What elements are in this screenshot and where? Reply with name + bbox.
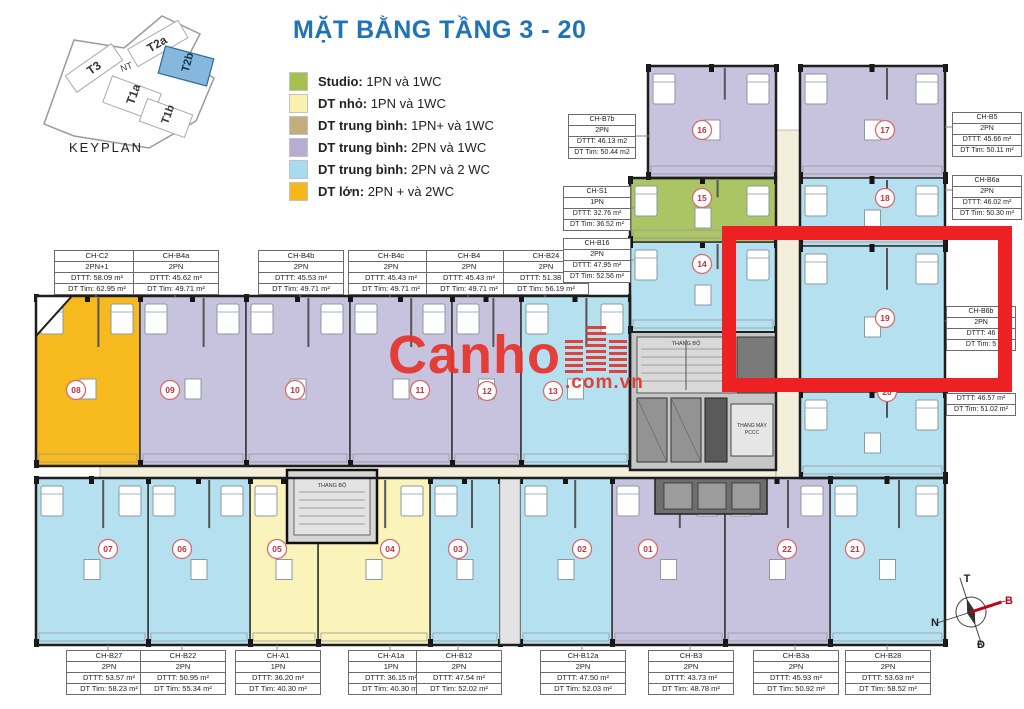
unit-number-22: 22 <box>778 540 797 559</box>
unit-code: CH-B4c <box>349 251 433 261</box>
unit-type: 2PN <box>134 261 218 272</box>
unit-code: CH-B28 <box>846 651 930 661</box>
unit-type: 2PN <box>427 261 511 272</box>
keyplan-caption: KEYPLAN <box>69 140 143 155</box>
fire-elevator-label-2: PCCC <box>745 430 760 436</box>
unit-number-16: 16 <box>693 121 712 140</box>
watermark-suffix: .com.vn <box>565 372 644 394</box>
unit-area-dttim: DT Tim: 50.30 m² <box>953 208 1021 219</box>
unit-code: CH-B6a <box>953 176 1021 186</box>
unit-area-dttim: DT Tim: 40.30 m² <box>236 683 320 694</box>
unit-number-04: 04 <box>381 540 400 559</box>
unit-area-dttim: DT Tim: 50.92 m² <box>754 683 838 694</box>
unit-code: CH-C2 <box>55 251 139 261</box>
unit-label-ch-s1: CH-S11PNDTTT: 32.76 m²DT Tim: 36.52 m² <box>563 186 631 231</box>
legend-swatch-small <box>289 94 308 113</box>
unit-label-ch-b7b: CH-B7b2PNDTTT: 46.13 m2DT Tim: 50.44 m2 <box>568 114 636 159</box>
unit-label-ch-b4a: CH-B4a2PNDTTT: 45.62 m²DT Tim: 49.71 m² <box>133 250 219 295</box>
unit-type: 2PN <box>67 661 151 672</box>
unit-type: 2PN <box>417 661 501 672</box>
legend: Studio: 1PN và 1WC DT nhỏ: 1PN và 1WC DT… <box>289 70 494 202</box>
unit-area-dttim: DT Tim: 49.71 m² <box>349 283 433 294</box>
unit-type: 2PN <box>569 125 635 136</box>
unit-code: CH-B16 <box>564 239 630 249</box>
unit-label-ch-b16: CH-B162PNDTTT: 47.95 m²DT Tim: 52.56 m² <box>563 238 631 283</box>
unit-label-ch-b28: CH-B282PNDTTT: 53.63 m²DT Tim: 58.52 m² <box>845 650 931 695</box>
unit-number-05: 05 <box>268 540 287 559</box>
keyplan: T3 NT T2a T2b T1a T1b KEYPLAN <box>14 6 229 158</box>
unit-area-dtt: DTTT: 45.53 m² <box>259 272 343 283</box>
unit-area-dttim: DT Tim: 58.23 m² <box>67 683 151 694</box>
unit-area-dtt: DTTT: 36.20 m² <box>236 672 320 683</box>
unit-code: CH-B3a <box>754 651 838 661</box>
svg-text:17: 17 <box>880 125 890 135</box>
unit-number-01: 01 <box>639 540 658 559</box>
unit-area-20 <box>798 390 948 480</box>
svg-text:08: 08 <box>71 385 81 395</box>
legend-item-medium-2pn1wc: DT trung bình: 2PN và 1WC <box>289 136 494 158</box>
svg-text:18: 18 <box>880 193 890 203</box>
unit-area-dtt: DTTT: 47.54 m² <box>417 672 501 683</box>
unit-area-dtt: DTTT: 43.73 m² <box>649 672 733 683</box>
unit-area-dtt: DTTT: 53.63 m² <box>846 672 930 683</box>
unit-type: 2PN <box>541 661 625 672</box>
svg-text:15: 15 <box>697 193 707 203</box>
legend-item-medium-2pn2wc: DT trung bình: 2PN và 2 WC <box>289 158 494 180</box>
unit-label-ch-b22: CH-B222PNDTTT: 50.95 m²DT Tim: 55.34 m² <box>140 650 226 695</box>
legend-item-large: DT lớn: 2PN + và 2WC <box>289 180 494 202</box>
unit-area-dttim: DT Tim: 49.71 m² <box>134 283 218 294</box>
legend-item-medium-1pn: DT trung bình: 1PN+ và 1WC <box>289 114 494 136</box>
unit-number-06: 06 <box>173 540 192 559</box>
unit-number-08: 08 <box>67 381 86 400</box>
unit-type: 2PN <box>141 661 225 672</box>
compass-icon: T B N Đ <box>925 568 1020 663</box>
page-title: MẶT BẰNG TẦNG 3 - 20 <box>293 16 586 45</box>
unit-area-dttim: DT Tim: 49.71 m² <box>259 283 343 294</box>
unit-code: CH-A1 <box>236 651 320 661</box>
svg-text:21: 21 <box>850 544 860 554</box>
legend-swatch-medium-2pn2wc <box>289 160 308 179</box>
unit-code: CH-B12 <box>417 651 501 661</box>
unit-area-16 <box>646 64 779 180</box>
unit-code: CH-B4a <box>134 251 218 261</box>
unit-label-ch-b4b: CH-B4b2PNDTTT: 45.53 m²DT Tim: 49.71 m² <box>258 250 344 295</box>
unit-area-dttim: DT Tim: 48.78 m² <box>649 683 733 694</box>
unit-type: 2PN+1 <box>55 261 139 272</box>
svg-text:16: 16 <box>697 125 707 135</box>
legend-swatch-studio <box>289 72 308 91</box>
svg-text:22: 22 <box>782 544 792 554</box>
unit-area-dtt: DTTT: 45.93 m² <box>754 672 838 683</box>
unit-label-ch-b6a: CH-B6a2PNDTTT: 46.02 m²DT Tim: 50.30 m² <box>952 175 1022 220</box>
unit-area-dttim: DT Tim: 36.52 m² <box>564 219 630 230</box>
unit-number-15: 15 <box>693 189 712 208</box>
unit-area-dttim: DT Tim: 56.19 m² <box>504 283 588 294</box>
unit-label-ch-b12a: CH-B12a2PNDTTT: 47.50 m²DT Tim: 52.03 m² <box>540 650 626 695</box>
fire-elevator-label-1: THANG MÁY <box>737 422 767 429</box>
unit-label-ch-b4c: CH-B4c2PNDTTT: 45.43 m²DT Tim: 49.71 m² <box>348 250 434 295</box>
unit-area-dtt: DTTT: 46.02 m² <box>953 197 1021 208</box>
unit-label-ch-b12: CH-B122PNDTTT: 47.54 m²DT Tim: 52.02 m² <box>416 650 502 695</box>
stair-label-2: THANG BỘ <box>318 482 347 489</box>
unit-area-dttim: DT Tim: 50.44 m2 <box>569 147 635 158</box>
unit-area-dtt: DTTT: 47.50 m² <box>541 672 625 683</box>
legend-swatch-medium-2pn1wc <box>289 138 308 157</box>
unit-code: CH-S1 <box>564 187 630 197</box>
svg-text:03: 03 <box>453 544 463 554</box>
unit-area-dttim: DT Tim: 62.95 m² <box>55 283 139 294</box>
unit-area-dtt: DTTT: 58.09 m² <box>55 272 139 283</box>
svg-text:01: 01 <box>643 544 653 554</box>
unit-area-dttim: DT Tim: 52.56 m² <box>564 271 630 282</box>
unit-area-02 <box>518 476 615 647</box>
unit-label-ch-a1: CH-A11PNDTTT: 36.20 m²DT Tim: 40.30 m² <box>235 650 321 695</box>
unit-type: 2PN <box>846 661 930 672</box>
unit-area-dttim: DT Tim: 50.11 m² <box>953 145 1021 156</box>
legend-item-studio: Studio: 1PN và 1WC <box>289 70 494 92</box>
legend-swatch-large <box>289 182 308 201</box>
unit-area-dtt: DTTT: 50.95 m² <box>141 672 225 683</box>
unit-code: CH-B12a <box>541 651 625 661</box>
unit-area-dtt: DTTT: 45.62 m² <box>134 272 218 283</box>
svg-text:04: 04 <box>385 544 395 554</box>
unit-code: CH-B4 <box>427 251 511 261</box>
unit-area-06 <box>146 476 253 647</box>
unit-label-ch-c2: CH-C22PN+1DTTT: 58.09 m²DT Tim: 62.95 m² <box>54 250 140 295</box>
unit-area-dtt: DTTT: 53.57 m² <box>67 672 151 683</box>
unit-area-dttim: DT Tim: 55.34 m² <box>141 683 225 694</box>
unit-code: CH-B22 <box>141 651 225 661</box>
compass-top: T <box>964 573 971 585</box>
unit-number-07: 07 <box>99 540 118 559</box>
unit-area-dtt: DTTT: 32.76 m² <box>564 208 630 219</box>
svg-text:07: 07 <box>103 544 113 554</box>
unit-label-ch-b5: CH-B52PNDTTT: 45.66 m²DT Tim: 50.11 m² <box>952 112 1022 157</box>
unit-area-dttim: DT Tim: 52.03 m² <box>541 683 625 694</box>
svg-text:06: 06 <box>177 544 187 554</box>
unit-area-dtt: DTTT: 47.95 m² <box>564 260 630 271</box>
unit-number-09: 09 <box>161 381 180 400</box>
compass-left: N <box>931 617 939 629</box>
floorplan-page: { "title": "MẶT BẰNG TẦNG 3 - 20", "keyp… <box>0 0 1024 709</box>
unit-area-dttim: DT Tim: 52.02 m² <box>417 683 501 694</box>
unit-type: 2PN <box>564 249 630 260</box>
unit-label-ch-b3a: CH-B3a2PNDTTT: 45.93 m²DT Tim: 50.92 m² <box>753 650 839 695</box>
unit-code: CH-B3 <box>649 651 733 661</box>
unit-area-03 <box>428 476 503 647</box>
svg-text:02: 02 <box>577 544 587 554</box>
unit-label-partial: DTTT: 46.57 m²DT Tim: 51.02 m² <box>946 393 1016 416</box>
unit-number-18: 18 <box>876 189 895 208</box>
legend-item-small: DT nhỏ: 1PN và 1WC <box>289 92 494 114</box>
unit-code: CH-B5 <box>953 113 1021 123</box>
unit-type: 2PN <box>953 123 1021 134</box>
compass-bottom: Đ <box>977 639 985 651</box>
unit-code: CH-B27 <box>67 651 151 661</box>
unit-type: 2PN <box>754 661 838 672</box>
watermark-building-icon <box>565 326 627 374</box>
unit-area-dttim: DT Tim: 49.71 m² <box>427 283 511 294</box>
unit-code: CH-B4b <box>259 251 343 261</box>
unit-area-dtt: DTTT: 45.43 m² <box>427 272 511 283</box>
unit-area-07 <box>34 476 151 647</box>
unit-number-21: 21 <box>846 540 865 559</box>
unit-type: 2PN <box>259 261 343 272</box>
unit-code: CH-B7b <box>569 115 635 125</box>
unit-number-14: 14 <box>693 255 712 274</box>
stair-label-1: THANG BỘ <box>672 340 701 347</box>
highlight-rectangle <box>722 226 1012 392</box>
svg-text:09: 09 <box>165 385 175 395</box>
unit-area-dttim: DT Tim: 58.52 m² <box>846 683 930 694</box>
unit-area-17 <box>798 64 948 180</box>
watermark-text: Canho <box>388 326 561 384</box>
unit-type: 2PN <box>649 661 733 672</box>
unit-number-10: 10 <box>286 381 305 400</box>
unit-area-dtt: DTTT: 46.13 m2 <box>569 136 635 147</box>
unit-type: 1PN <box>564 197 630 208</box>
svg-text:05: 05 <box>272 544 282 554</box>
unit-type: 1PN <box>236 661 320 672</box>
svg-text:14: 14 <box>697 259 707 269</box>
unit-number-02: 02 <box>573 540 592 559</box>
svg-text:10: 10 <box>290 385 300 395</box>
unit-type: 2PN <box>953 186 1021 197</box>
watermark: Canho .com.vn <box>388 326 644 394</box>
unit-area-dtt: DTTT: 45.66 m² <box>953 134 1021 145</box>
unit-number-03: 03 <box>449 540 468 559</box>
unit-area-dtt: DTTT: 46.57 m² <box>947 394 1015 404</box>
unit-area-09 <box>138 294 249 468</box>
unit-type: 2PN <box>349 261 433 272</box>
unit-label-ch-b3: CH-B32PNDTTT: 43.73 m²DT Tim: 48.78 m² <box>648 650 734 695</box>
unit-number-17: 17 <box>876 121 895 140</box>
unit-area-dttim: DT Tim: 51.02 m² <box>947 404 1015 415</box>
unit-area-dtt: DTTT: 45.43 m² <box>349 272 433 283</box>
compass-right: B <box>1005 595 1013 607</box>
legend-swatch-medium-1pn <box>289 116 308 135</box>
unit-label-ch-b4: CH-B42PNDTTT: 45.43 m²DT Tim: 49.71 m² <box>426 250 512 295</box>
